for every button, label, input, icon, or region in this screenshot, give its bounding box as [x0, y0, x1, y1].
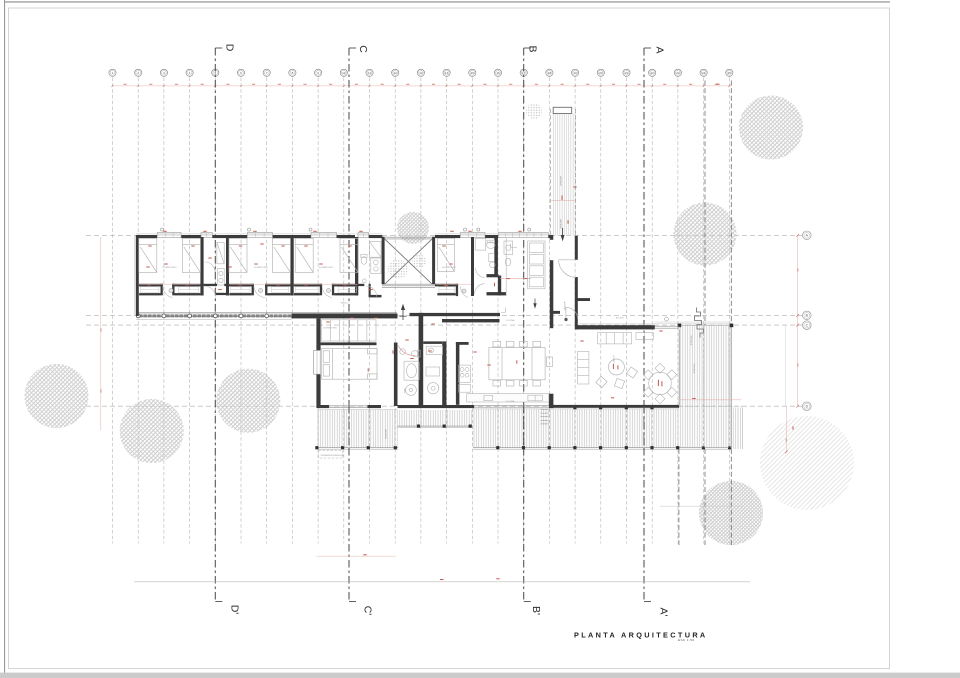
svg-text:D: D: [224, 44, 236, 52]
svg-text:11: 11: [368, 71, 371, 75]
svg-text:ACCESO: ACCESO: [384, 429, 387, 439]
svg-text:ACCESO: ACCESO: [616, 317, 625, 320]
svg-text:COCINA: COCINA: [506, 400, 515, 403]
svg-text:21: 21: [625, 71, 629, 75]
svg-text:DORMITORIO: DORMITORIO: [319, 267, 333, 269]
svg-text:16: 16: [496, 71, 500, 75]
svg-text:DORMITORIO: DORMITORIO: [162, 267, 176, 269]
svg-text:A: A: [654, 46, 666, 53]
svg-text:18: 18: [548, 71, 552, 75]
svg-text:ACCESO: ACCESO: [563, 302, 566, 311]
svg-text:ACCESO: ACCESO: [559, 176, 562, 186]
svg-text:10: 10: [342, 71, 346, 75]
svg-text:20: 20: [599, 71, 603, 75]
svg-text:DORMITORIO: DORMITORIO: [254, 267, 268, 269]
svg-text:13: 13: [419, 71, 423, 75]
svg-text:ESTAR: ESTAR: [612, 355, 615, 363]
svg-text:25: 25: [728, 71, 732, 75]
svg-text:TERRAZA EXPANSION: TERRAZA EXPANSION: [320, 454, 344, 457]
svg-text:DORMITORIO: DORMITORIO: [323, 328, 337, 330]
svg-text:BATH: BATH: [403, 388, 406, 394]
svg-text:24: 24: [702, 71, 706, 75]
svg-text:19: 19: [573, 71, 577, 75]
svg-text:ESC 1:50: ESC 1:50: [678, 638, 694, 642]
svg-text:A': A': [658, 607, 670, 616]
svg-text:ACCESO: ACCESO: [559, 219, 562, 229]
svg-text:B: B: [527, 45, 539, 52]
svg-text:D': D': [229, 605, 241, 615]
svg-text:C': C': [362, 606, 374, 616]
svg-text:23: 23: [676, 71, 680, 75]
svg-text:PASILLO: PASILLO: [341, 302, 350, 305]
svg-text:TERRAZA: TERRAZA: [693, 363, 696, 374]
svg-text:14: 14: [445, 71, 449, 75]
svg-text:B': B': [530, 606, 542, 615]
svg-text:C: C: [357, 45, 369, 53]
svg-text:12: 12: [394, 71, 398, 75]
svg-text:DORMITORIO: DORMITORIO: [442, 267, 456, 269]
svg-text:TERRAZA: TERRAZA: [690, 335, 693, 346]
svg-text:22: 22: [651, 71, 655, 75]
svg-text:15: 15: [471, 71, 475, 75]
svg-text:COCINA: COCINA: [506, 319, 515, 322]
